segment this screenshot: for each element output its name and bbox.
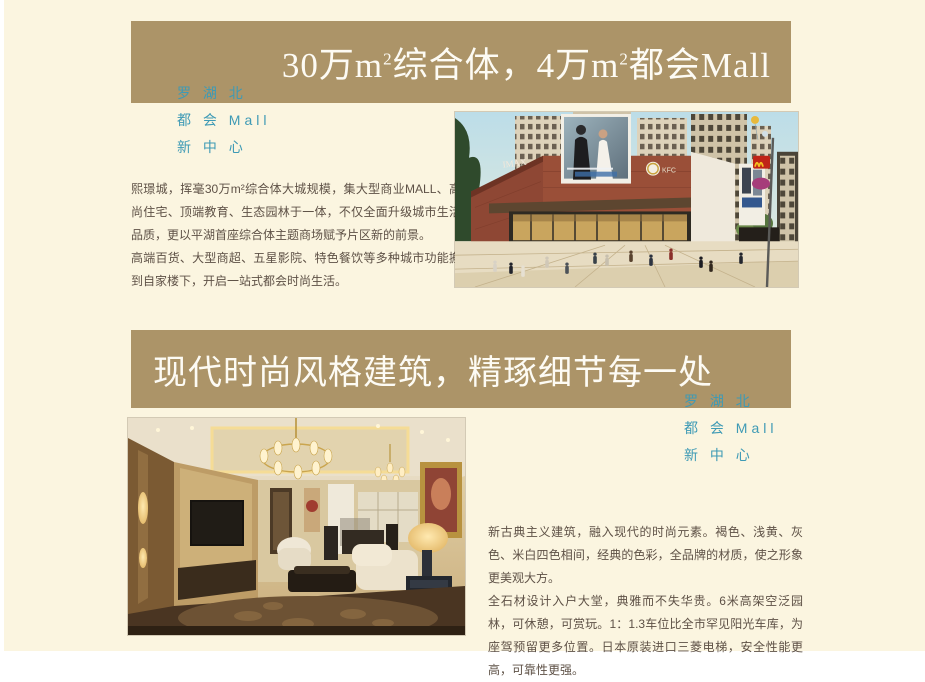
poster bbox=[742, 168, 751, 194]
armchair bbox=[277, 537, 311, 570]
mall-headline: 30万m2综合体，4万m2都会Mall bbox=[282, 37, 771, 88]
residence-paragraph-1: 新古典主义建筑，融入现代的时尚元素。褐色、浅黄、灰色、米白四色相间，经典的色彩，… bbox=[488, 521, 803, 590]
wall-sconce bbox=[138, 492, 148, 524]
location-tagline-top: 罗 湖 北 都 会 Mall 新 中 心 bbox=[177, 80, 270, 161]
mall-rendering-image: IMAX KFC bbox=[455, 112, 798, 287]
tagline-line-2: 都 会 Mall bbox=[177, 107, 270, 134]
ottoman-table bbox=[288, 566, 356, 592]
mall-rendering-illustration: IMAX KFC bbox=[455, 112, 798, 287]
svg-text:KFC: KFC bbox=[662, 168, 676, 175]
left-wall bbox=[128, 438, 174, 635]
mall-paragraph-2: 高端百货、大型商超、五星影院、特色餐饮等多种城市功能搬到自家楼下，开启一站式都会… bbox=[131, 247, 461, 293]
residence-description: 新古典主义建筑，融入现代的时尚元素。褐色、浅黄、灰色、米白四色相间，经典的色彩，… bbox=[488, 521, 803, 682]
balloon bbox=[751, 116, 759, 124]
tagline-line-1: 罗 湖 北 bbox=[177, 80, 270, 107]
mall-paragraph-1: 熙璟城，挥毫30万m²综合体大城规模，集大型商业MALL、高尚住宅、顶端教育、生… bbox=[131, 178, 461, 247]
mall-description: 熙璟城，挥毫30万m²综合体大城规模，集大型商业MALL、高尚住宅、顶端教育、生… bbox=[131, 178, 461, 293]
interior-photo-image bbox=[128, 418, 465, 635]
living-room-illustration bbox=[128, 418, 465, 635]
residence-paragraph-2: 全石材设计入户大堂，典雅而不失华贵。6米高架空泛园林，可休憩，可赏玩。1：1.3… bbox=[488, 590, 803, 682]
tagline-line-3: 新 中 心 bbox=[684, 442, 777, 469]
glass-storefront bbox=[513, 214, 687, 242]
tagline-line-2: 都 会 Mall bbox=[684, 415, 777, 442]
location-tagline-bottom: 罗 湖 北 都 会 Mall 新 中 心 bbox=[684, 388, 777, 469]
tagline-line-1: 罗 湖 北 bbox=[684, 388, 777, 415]
oval-sign bbox=[752, 178, 770, 190]
tagline-line-3: 新 中 心 bbox=[177, 134, 270, 161]
page-edge bbox=[0, 0, 4, 651]
residence-headline: 现代时尚风格建筑，精琢细节每一处 bbox=[153, 345, 713, 394]
brochure-page: 30万m2综合体，4万m2都会Mall 罗 湖 北 都 会 Mall 新 中 心… bbox=[0, 0, 925, 651]
